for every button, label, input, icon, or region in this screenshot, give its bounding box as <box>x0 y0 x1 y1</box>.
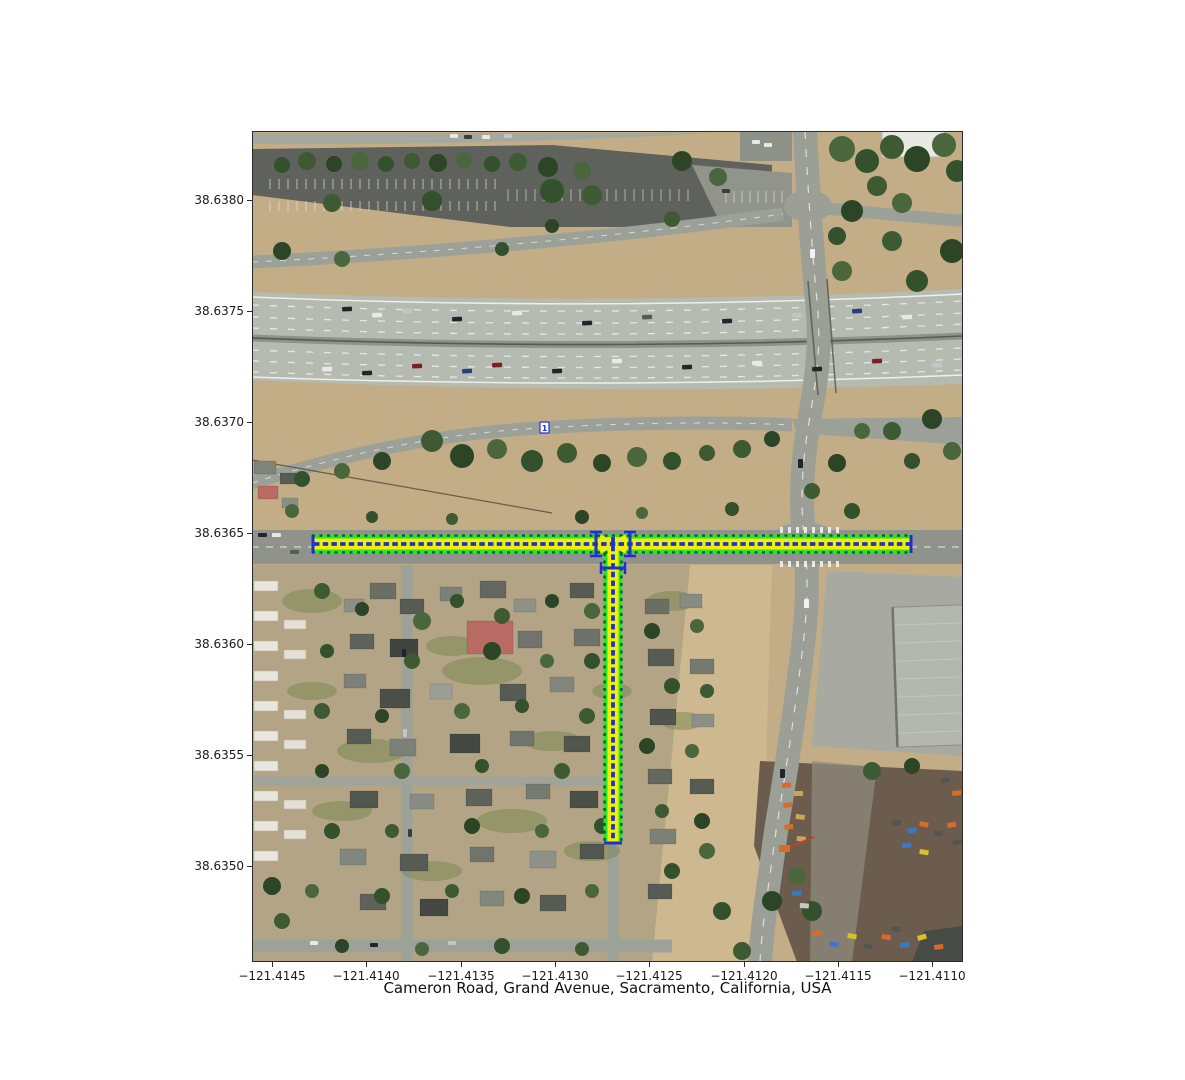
house-roof <box>480 891 504 906</box>
tree-icon <box>415 942 429 956</box>
crosswalk-bar <box>804 561 807 567</box>
car-icon <box>752 140 760 144</box>
tree-icon <box>475 759 489 773</box>
crosswalk-bar <box>812 561 815 567</box>
tree-icon <box>841 200 863 222</box>
tree-icon <box>940 239 963 263</box>
tree-icon <box>584 653 600 669</box>
tree-icon <box>334 463 350 479</box>
tree-icon <box>922 409 942 429</box>
lawn-patch <box>282 589 342 613</box>
tree-icon <box>644 623 660 639</box>
x-tick-mark <box>744 962 745 967</box>
equipment-icon <box>952 790 961 796</box>
x-tick-mark <box>272 962 273 967</box>
tree-icon <box>844 503 860 519</box>
mobile-home <box>254 821 278 831</box>
tree-icon <box>366 511 378 523</box>
car-icon <box>780 769 785 778</box>
house-roof <box>344 674 366 688</box>
car-icon <box>372 313 382 318</box>
car-icon <box>310 941 318 945</box>
transit-stop-icon: 1 <box>540 422 549 433</box>
car-icon <box>512 311 522 316</box>
map-axes: 1 <box>252 131 963 962</box>
house-roof <box>500 684 526 701</box>
tree-icon <box>464 818 480 834</box>
tree-icon <box>832 261 852 281</box>
tree-icon <box>713 902 731 920</box>
house-roof <box>680 594 702 608</box>
tree-icon <box>904 146 930 172</box>
house-roof <box>570 583 594 598</box>
tree-icon <box>422 191 442 211</box>
mobile-home <box>254 581 278 591</box>
car-icon <box>504 134 512 138</box>
car-icon <box>682 365 692 370</box>
crosswalk-bar <box>780 527 783 533</box>
tree-icon <box>450 444 474 468</box>
house-roof <box>510 731 534 746</box>
tree-icon <box>375 709 389 723</box>
car-icon <box>482 135 490 139</box>
tree-icon <box>557 443 577 463</box>
house-roof <box>350 791 378 808</box>
tree-icon <box>456 153 472 169</box>
tree-icon <box>404 653 420 669</box>
y-tick-label: 38.6355 <box>194 748 244 762</box>
house-roof <box>540 895 566 911</box>
tree-icon <box>733 942 751 960</box>
tree-icon <box>538 157 558 177</box>
tree-icon <box>334 251 350 267</box>
x-tick-mark <box>932 962 933 967</box>
tree-icon <box>421 430 443 452</box>
tree-icon <box>664 211 680 227</box>
tree-icon <box>554 763 570 779</box>
tree-icon <box>305 884 319 898</box>
house-roof <box>410 794 434 809</box>
crosswalk-bar <box>820 561 823 567</box>
tree-icon <box>880 135 904 159</box>
industrial-building-roof <box>893 604 963 747</box>
tree-icon <box>404 153 420 169</box>
tree-icon <box>540 654 554 668</box>
car-icon <box>452 317 462 322</box>
y-tick-label: 38.6360 <box>194 637 244 651</box>
crosswalk-bar <box>796 561 799 567</box>
crane-cab-icon <box>779 845 790 852</box>
house-roof <box>430 684 452 699</box>
tree-icon <box>829 136 855 162</box>
y-tick-label: 38.6380 <box>194 193 244 207</box>
tree-icon <box>454 703 470 719</box>
tree-icon <box>725 502 739 516</box>
house-roof <box>550 677 574 692</box>
house-roof <box>570 791 598 808</box>
y-tick-mark <box>247 200 252 201</box>
tree-icon <box>636 507 648 519</box>
house-roof <box>340 849 366 865</box>
tree-icon <box>323 194 341 212</box>
tree-icon <box>932 133 956 157</box>
equipment-icon <box>782 783 791 788</box>
tree-icon <box>450 594 464 608</box>
mobile-home <box>254 731 278 741</box>
house-roof <box>564 736 590 752</box>
house-roof <box>645 599 669 614</box>
crosswalk-bar <box>828 561 831 567</box>
tree-icon <box>582 185 602 205</box>
crosswalk-bar <box>788 561 791 567</box>
house-roof <box>350 634 374 649</box>
tree-icon <box>274 157 290 173</box>
lawn-patch <box>442 657 522 685</box>
y-tick-mark <box>247 755 252 756</box>
car-icon <box>362 371 372 376</box>
tree-icon <box>335 939 349 953</box>
y-tick-label: 38.6370 <box>194 415 244 429</box>
mobile-home <box>284 710 306 719</box>
house-roof <box>480 581 506 598</box>
mobile-home <box>284 830 306 839</box>
tree-icon <box>374 888 390 904</box>
house-roof <box>526 784 550 799</box>
tree-icon <box>540 179 564 203</box>
tree-icon <box>314 583 330 599</box>
tree-icon <box>854 423 870 439</box>
crosswalk-bar <box>836 561 839 567</box>
mobile-home <box>254 851 278 861</box>
tree-icon <box>285 504 299 518</box>
tree-icon <box>487 439 507 459</box>
mobile-home <box>254 701 278 711</box>
tree-icon <box>378 156 394 172</box>
tree-icon <box>494 608 510 624</box>
satellite-map-image: 1 <box>252 131 963 962</box>
tree-icon <box>788 867 806 885</box>
equipment-icon <box>902 843 911 848</box>
house-roof <box>514 599 536 612</box>
tree-icon <box>882 231 902 251</box>
tree-icon <box>699 445 715 461</box>
house-roof <box>470 847 494 862</box>
car-icon <box>810 249 815 258</box>
house-roof <box>420 899 448 916</box>
tree-icon <box>494 938 510 954</box>
y-tick-mark <box>247 533 252 534</box>
house-roof <box>518 631 542 648</box>
house-roof <box>692 714 714 727</box>
house-roof <box>254 461 276 474</box>
tree-icon <box>828 227 846 245</box>
x-tick-mark <box>649 962 650 967</box>
car-icon <box>582 321 592 326</box>
equipment-icon <box>934 831 943 836</box>
mobile-home <box>284 740 306 749</box>
car-icon <box>370 943 378 947</box>
tree-icon <box>515 699 529 713</box>
plot-title: Cameron Road, Grand Avenue, Sacramento, … <box>252 979 963 997</box>
tree-icon <box>314 703 330 719</box>
car-icon <box>872 359 882 364</box>
y-tick-mark <box>247 866 252 867</box>
y-tick-label: 38.6375 <box>194 304 244 318</box>
tree-icon <box>690 619 704 633</box>
x-tick-mark <box>838 962 839 967</box>
car-icon <box>932 363 942 368</box>
tree-icon <box>324 823 340 839</box>
car-icon <box>402 309 412 314</box>
crosswalk-bar <box>820 527 823 533</box>
tree-icon <box>883 422 901 440</box>
tree-icon <box>733 440 751 458</box>
car-icon <box>792 313 802 318</box>
tree-icon <box>584 603 600 619</box>
car-icon <box>804 599 809 608</box>
car-icon <box>764 143 772 147</box>
y-tick-mark <box>247 644 252 645</box>
tree-icon <box>545 219 559 233</box>
car-icon <box>450 134 458 138</box>
tree-icon <box>326 156 342 172</box>
car-icon <box>408 829 412 837</box>
crosswalk-bar <box>828 527 831 533</box>
car-icon <box>552 369 562 374</box>
tree-icon <box>762 891 782 911</box>
tree-icon <box>394 763 410 779</box>
tree-icon <box>535 824 549 838</box>
tree-icon <box>855 149 879 173</box>
crosswalk-bar <box>836 527 839 533</box>
tree-icon <box>273 242 291 260</box>
equipment-icon <box>892 820 901 826</box>
tree-icon <box>672 151 692 171</box>
tree-icon <box>575 942 589 956</box>
house-roof <box>530 851 556 868</box>
tree-icon <box>828 454 846 472</box>
tree-icon <box>445 884 459 898</box>
tree-icon <box>315 764 329 778</box>
mobile-home <box>284 620 306 629</box>
car-icon <box>612 359 622 364</box>
tree-icon <box>521 450 543 472</box>
mobile-home <box>254 761 278 771</box>
tree-icon <box>355 602 369 616</box>
tree-icon <box>263 877 281 895</box>
mobile-home <box>254 671 278 681</box>
house-roof <box>650 709 676 725</box>
y-tick-label: 38.6350 <box>194 859 244 873</box>
house-roof <box>648 649 674 666</box>
house-roof <box>450 734 480 753</box>
car-icon <box>258 533 267 537</box>
lawn-patch <box>287 682 337 700</box>
car-icon <box>902 315 912 320</box>
industrial-building <box>893 604 963 747</box>
car-icon <box>342 307 352 312</box>
tree-icon <box>943 442 961 460</box>
car-icon <box>722 189 730 193</box>
house-roof <box>648 769 672 784</box>
tree-icon <box>627 447 647 467</box>
tree-icon <box>495 242 509 256</box>
house-roof <box>380 689 410 708</box>
tree-icon <box>294 471 310 487</box>
house-roof <box>258 486 278 499</box>
car-icon <box>412 364 422 369</box>
car-icon <box>798 459 803 468</box>
crosswalk-bar <box>780 561 783 567</box>
y-tick-label: 38.6365 <box>194 526 244 540</box>
intersection-node <box>620 542 624 546</box>
mobile-home <box>284 800 306 809</box>
x-tick-mark <box>555 962 556 967</box>
house-roof <box>347 729 371 744</box>
crosswalk-bar <box>812 527 815 533</box>
tree-icon <box>385 824 399 838</box>
tree-icon <box>664 863 680 879</box>
car-icon <box>322 367 332 372</box>
top-intersection <box>784 190 832 222</box>
mobile-home <box>284 650 306 659</box>
tree-icon <box>694 813 710 829</box>
house-roof <box>400 599 424 614</box>
mobile-home <box>254 611 278 621</box>
crosswalk-bar <box>788 527 791 533</box>
car-icon <box>722 319 732 324</box>
car-icon <box>492 363 502 368</box>
tree-icon <box>904 453 920 469</box>
tree-icon <box>514 888 530 904</box>
crosswalk-bar <box>796 527 799 533</box>
tree-icon <box>663 452 681 470</box>
tree-icon <box>906 270 928 292</box>
equipment-icon <box>794 791 803 796</box>
y-tick-mark <box>247 422 252 423</box>
tree-icon <box>700 684 714 698</box>
equipment-icon <box>783 802 792 808</box>
equipment-icon <box>795 814 804 820</box>
tree-icon <box>699 843 715 859</box>
house-roof <box>690 659 714 674</box>
mobile-home <box>254 641 278 651</box>
car-icon <box>852 309 862 314</box>
tree-icon <box>639 738 655 754</box>
tree-icon <box>892 193 912 213</box>
equipment-icon <box>812 930 821 936</box>
car-icon <box>402 649 406 657</box>
tree-icon <box>709 168 727 186</box>
tree-icon <box>413 612 431 630</box>
tree-icon <box>764 431 780 447</box>
tree-icon <box>655 804 669 818</box>
tree-icon <box>429 154 447 172</box>
tree-icon <box>685 744 699 758</box>
house-roof <box>690 779 714 794</box>
tree-icon <box>593 454 611 472</box>
equipment-icon <box>792 890 801 896</box>
car-icon <box>462 369 472 374</box>
car-icon <box>812 367 822 372</box>
intersection-node <box>602 542 606 546</box>
tree-icon <box>904 758 920 774</box>
tree-icon <box>509 153 527 171</box>
house-roof <box>400 854 428 871</box>
house-roof <box>580 844 604 859</box>
transit-stop-label: 1 <box>542 424 548 433</box>
y-tick-mark <box>247 311 252 312</box>
tree-icon <box>664 678 680 694</box>
tree-icon <box>804 483 820 499</box>
tree-icon <box>573 162 591 180</box>
house-roof <box>466 789 492 806</box>
house-roof <box>370 583 396 599</box>
tree-icon <box>320 644 334 658</box>
car-icon <box>464 135 472 139</box>
car-icon <box>272 533 281 537</box>
freeway <box>252 289 963 389</box>
tree-icon <box>867 176 887 196</box>
crosswalk-bar <box>804 527 807 533</box>
tree-icon <box>298 152 316 170</box>
tree-icon <box>545 594 559 608</box>
tree-icon <box>579 708 595 724</box>
tree-icon <box>373 452 391 470</box>
tree-icon <box>863 762 881 780</box>
house-roof <box>650 829 676 844</box>
tree-icon <box>351 152 369 170</box>
x-tick-mark <box>366 962 367 967</box>
tree-icon <box>483 642 501 660</box>
tree-icon <box>575 510 589 524</box>
house-roof <box>574 629 600 646</box>
equipment-icon <box>800 903 809 908</box>
tree-icon <box>446 513 458 525</box>
car-icon <box>448 941 456 945</box>
figure-canvas: 1 38.638038.637538.637038.636538.636038.… <box>0 0 1185 1080</box>
car-icon <box>752 361 762 366</box>
x-tick-mark <box>461 962 462 967</box>
car-icon <box>403 729 407 737</box>
tree-icon <box>585 884 599 898</box>
car-icon <box>642 315 652 320</box>
car-icon <box>290 550 299 554</box>
house-roof <box>648 884 672 899</box>
house-roof <box>390 739 416 756</box>
mobile-home <box>254 791 278 801</box>
tree-icon <box>274 913 290 929</box>
tree-icon <box>484 156 500 172</box>
